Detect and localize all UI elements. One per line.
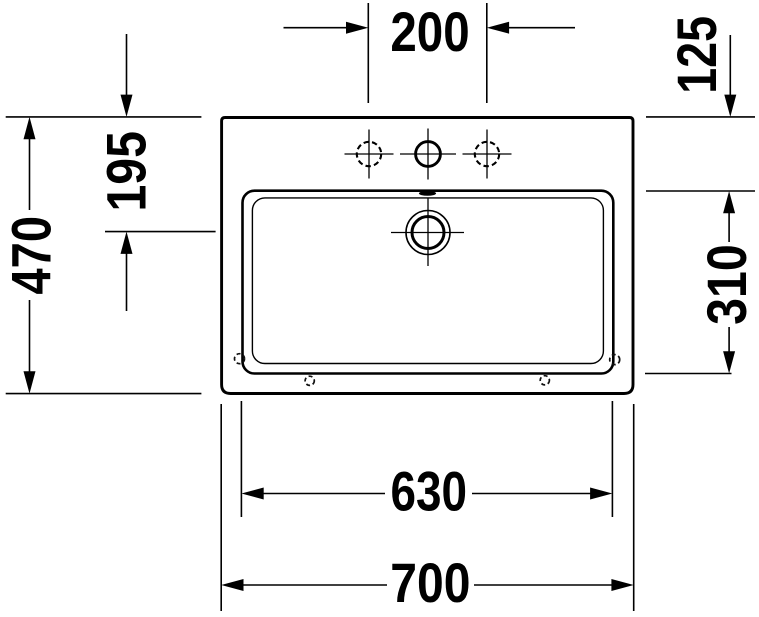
- svg-text:200: 200: [390, 0, 469, 63]
- svg-text:630: 630: [391, 459, 468, 522]
- svg-text:125: 125: [665, 16, 728, 94]
- svg-text:195: 195: [95, 131, 158, 212]
- svg-text:310: 310: [695, 244, 758, 325]
- svg-text:700: 700: [390, 551, 470, 614]
- svg-text:470: 470: [0, 216, 63, 295]
